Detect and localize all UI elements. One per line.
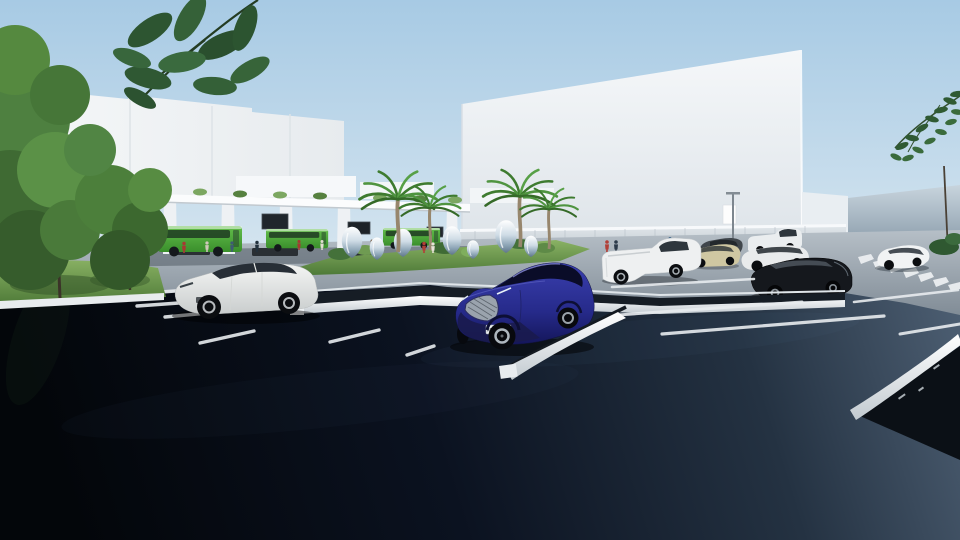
canopy-roof-box <box>236 176 356 197</box>
curb-end-block <box>499 364 518 379</box>
rear-wheel <box>558 308 579 329</box>
render-stage: AB 123 AR <box>0 0 960 540</box>
rear-wheel <box>278 292 300 314</box>
wall-sign <box>723 205 736 224</box>
front-wheel <box>197 295 221 319</box>
green-bus <box>158 226 242 257</box>
parking-lot-render: AB 123 AR <box>0 0 960 540</box>
green-bus <box>266 229 328 252</box>
